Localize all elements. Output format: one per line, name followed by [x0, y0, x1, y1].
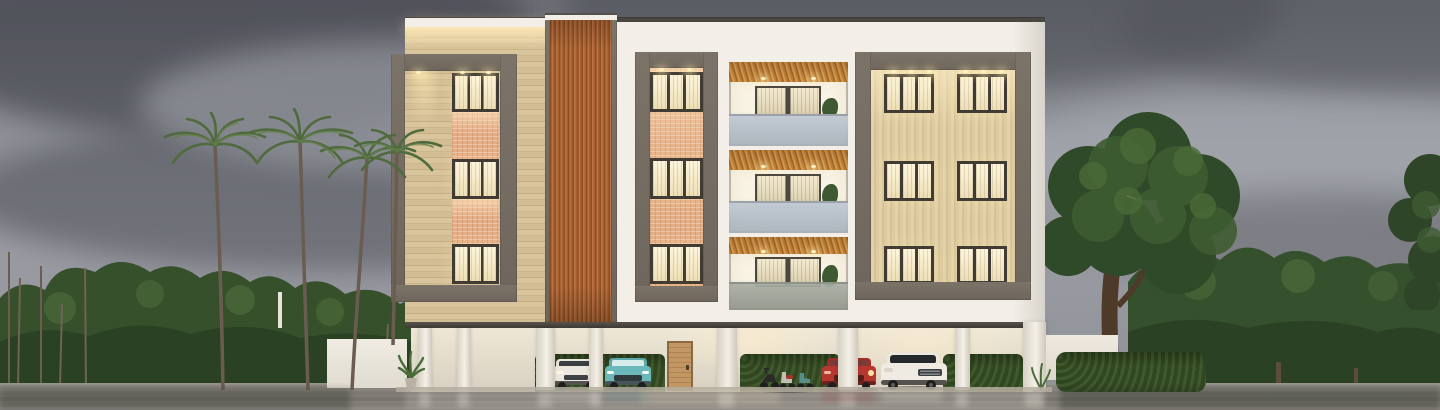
downlight [891, 70, 896, 73]
lit-window [452, 159, 499, 199]
stilt-column [955, 328, 970, 390]
warm-light-reflection [640, 391, 780, 404]
frame-bottom-bar [635, 286, 718, 302]
brick-panel [452, 199, 499, 244]
window-frame-right [855, 52, 1031, 300]
column-reflection [719, 392, 734, 407]
column-reflection [538, 392, 552, 407]
downlight [963, 70, 968, 73]
tree-reflection-left [0, 388, 350, 410]
stilt-column [589, 328, 603, 390]
lit-window [957, 74, 1007, 113]
stilt-column [838, 328, 858, 390]
frame-right-bar [500, 54, 517, 302]
lit-window [650, 158, 703, 199]
lit-window [452, 73, 499, 112]
architectural-render-scene [0, 0, 1440, 410]
downlight [909, 70, 914, 73]
balcony-downlight [811, 165, 816, 168]
balcony-downlight [761, 250, 766, 253]
lit-window [957, 246, 1007, 284]
lit-window [884, 246, 934, 284]
lit-window [650, 72, 703, 112]
stilt-column [536, 328, 555, 390]
bare-sapling [40, 266, 42, 388]
column-reflection [956, 392, 968, 407]
white-car-reflection [882, 392, 942, 402]
downlight [416, 71, 421, 74]
stilt-column [457, 328, 471, 390]
white-suv-right [878, 349, 950, 392]
balcony-downlight [761, 77, 766, 80]
balcony-floor-3 [729, 62, 848, 146]
downlight [659, 68, 664, 71]
left-wing-fascia [405, 18, 545, 27]
frame-top-bar [391, 54, 517, 71]
lit-window [957, 161, 1007, 201]
balcony-ceiling-woodslat [729, 237, 848, 254]
lit-window [884, 74, 934, 113]
balcony-glass-railing [729, 114, 848, 146]
downlight [687, 68, 692, 71]
wood-slat-strip [545, 13, 617, 322]
column-reflection [1025, 392, 1043, 407]
red-car-reflection [822, 392, 874, 402]
balcony-glass-railing [729, 201, 848, 233]
overhanging-branch [1360, 150, 1440, 310]
balcony-floor-1 [729, 237, 848, 310]
balcony-downlight [761, 165, 766, 168]
window-frame-center [635, 52, 718, 302]
frame-right-bar [703, 52, 718, 302]
door-handle [686, 365, 689, 370]
roof-edge-right [617, 18, 1045, 22]
frame-bottom-bar [855, 282, 1031, 300]
wood-strip-left-band [545, 20, 550, 322]
frame-left-bar [635, 52, 650, 302]
wood-strip-right-band [611, 20, 617, 322]
wood-slats [550, 20, 611, 322]
right-hedge [1056, 352, 1206, 392]
downlight [981, 70, 986, 73]
lit-window [650, 244, 703, 284]
balcony-downlight [811, 77, 816, 80]
balcony-floor-2 [729, 150, 848, 233]
wood-strip-cap [545, 13, 617, 20]
entrance-door [667, 341, 693, 391]
lit-window [452, 244, 499, 284]
frame-right-bar [1015, 52, 1031, 300]
palm-trees [120, 90, 450, 392]
balcony-downlight [811, 250, 816, 253]
tree-reflection-right [1060, 388, 1440, 410]
lit-window [884, 161, 934, 201]
brick-panel [452, 112, 499, 159]
bare-sapling [8, 252, 10, 388]
downlight [999, 70, 1004, 73]
downlight [927, 70, 932, 73]
white-car-reflection [553, 392, 599, 402]
stilt-column [717, 328, 737, 390]
teal-car-reflection [606, 392, 650, 402]
balcony-ceiling-woodslat [729, 62, 848, 82]
frame-top-bar [855, 52, 1031, 70]
balcony-ceiling-woodslat [729, 150, 848, 170]
frame-left-bar [855, 52, 871, 300]
column-reflection [458, 392, 469, 407]
balcony-glass-railing [729, 282, 848, 310]
column-reflection [419, 392, 430, 407]
downlight [460, 71, 465, 74]
downlight [486, 71, 491, 74]
left-wing-fascia-glow [405, 26, 545, 52]
